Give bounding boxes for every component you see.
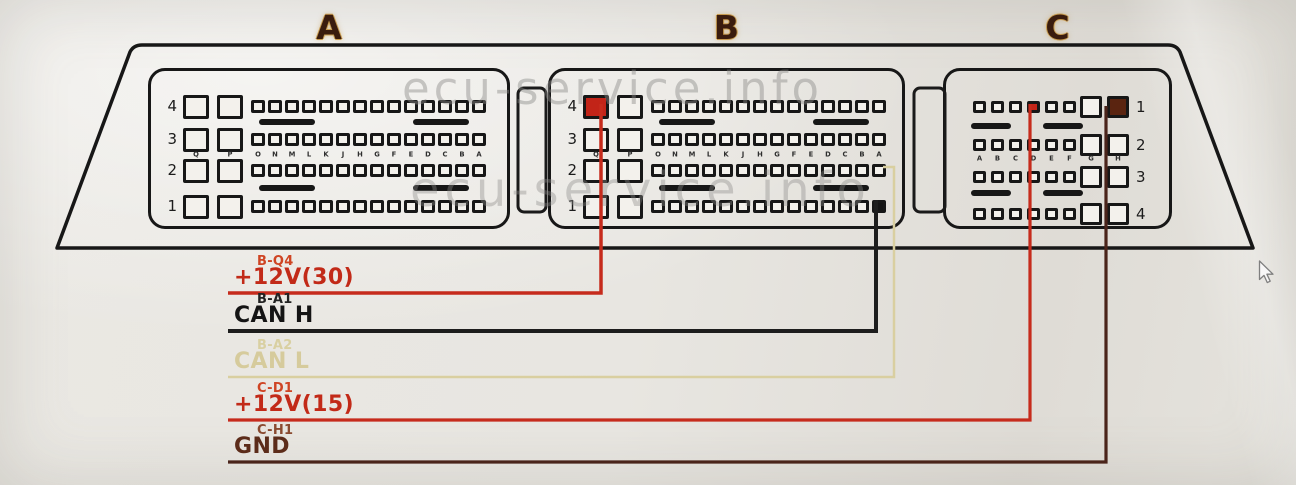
housing-bridge-bc	[914, 88, 945, 212]
ecu-housing-outline	[57, 45, 1253, 248]
wire-c-h1	[228, 106, 1106, 462]
wiring-layer	[0, 0, 1296, 485]
housing-bridge-ab	[518, 88, 546, 212]
wire-b-a2	[228, 167, 894, 377]
wire-b-a1	[228, 200, 876, 331]
mouse-cursor	[1258, 260, 1276, 284]
ecu-pinout-diagram: A B C 4321QPONMLKJHGFEDCBA 4321QPONMLKJH…	[0, 0, 1296, 485]
wire-c-d1	[228, 104, 1030, 420]
